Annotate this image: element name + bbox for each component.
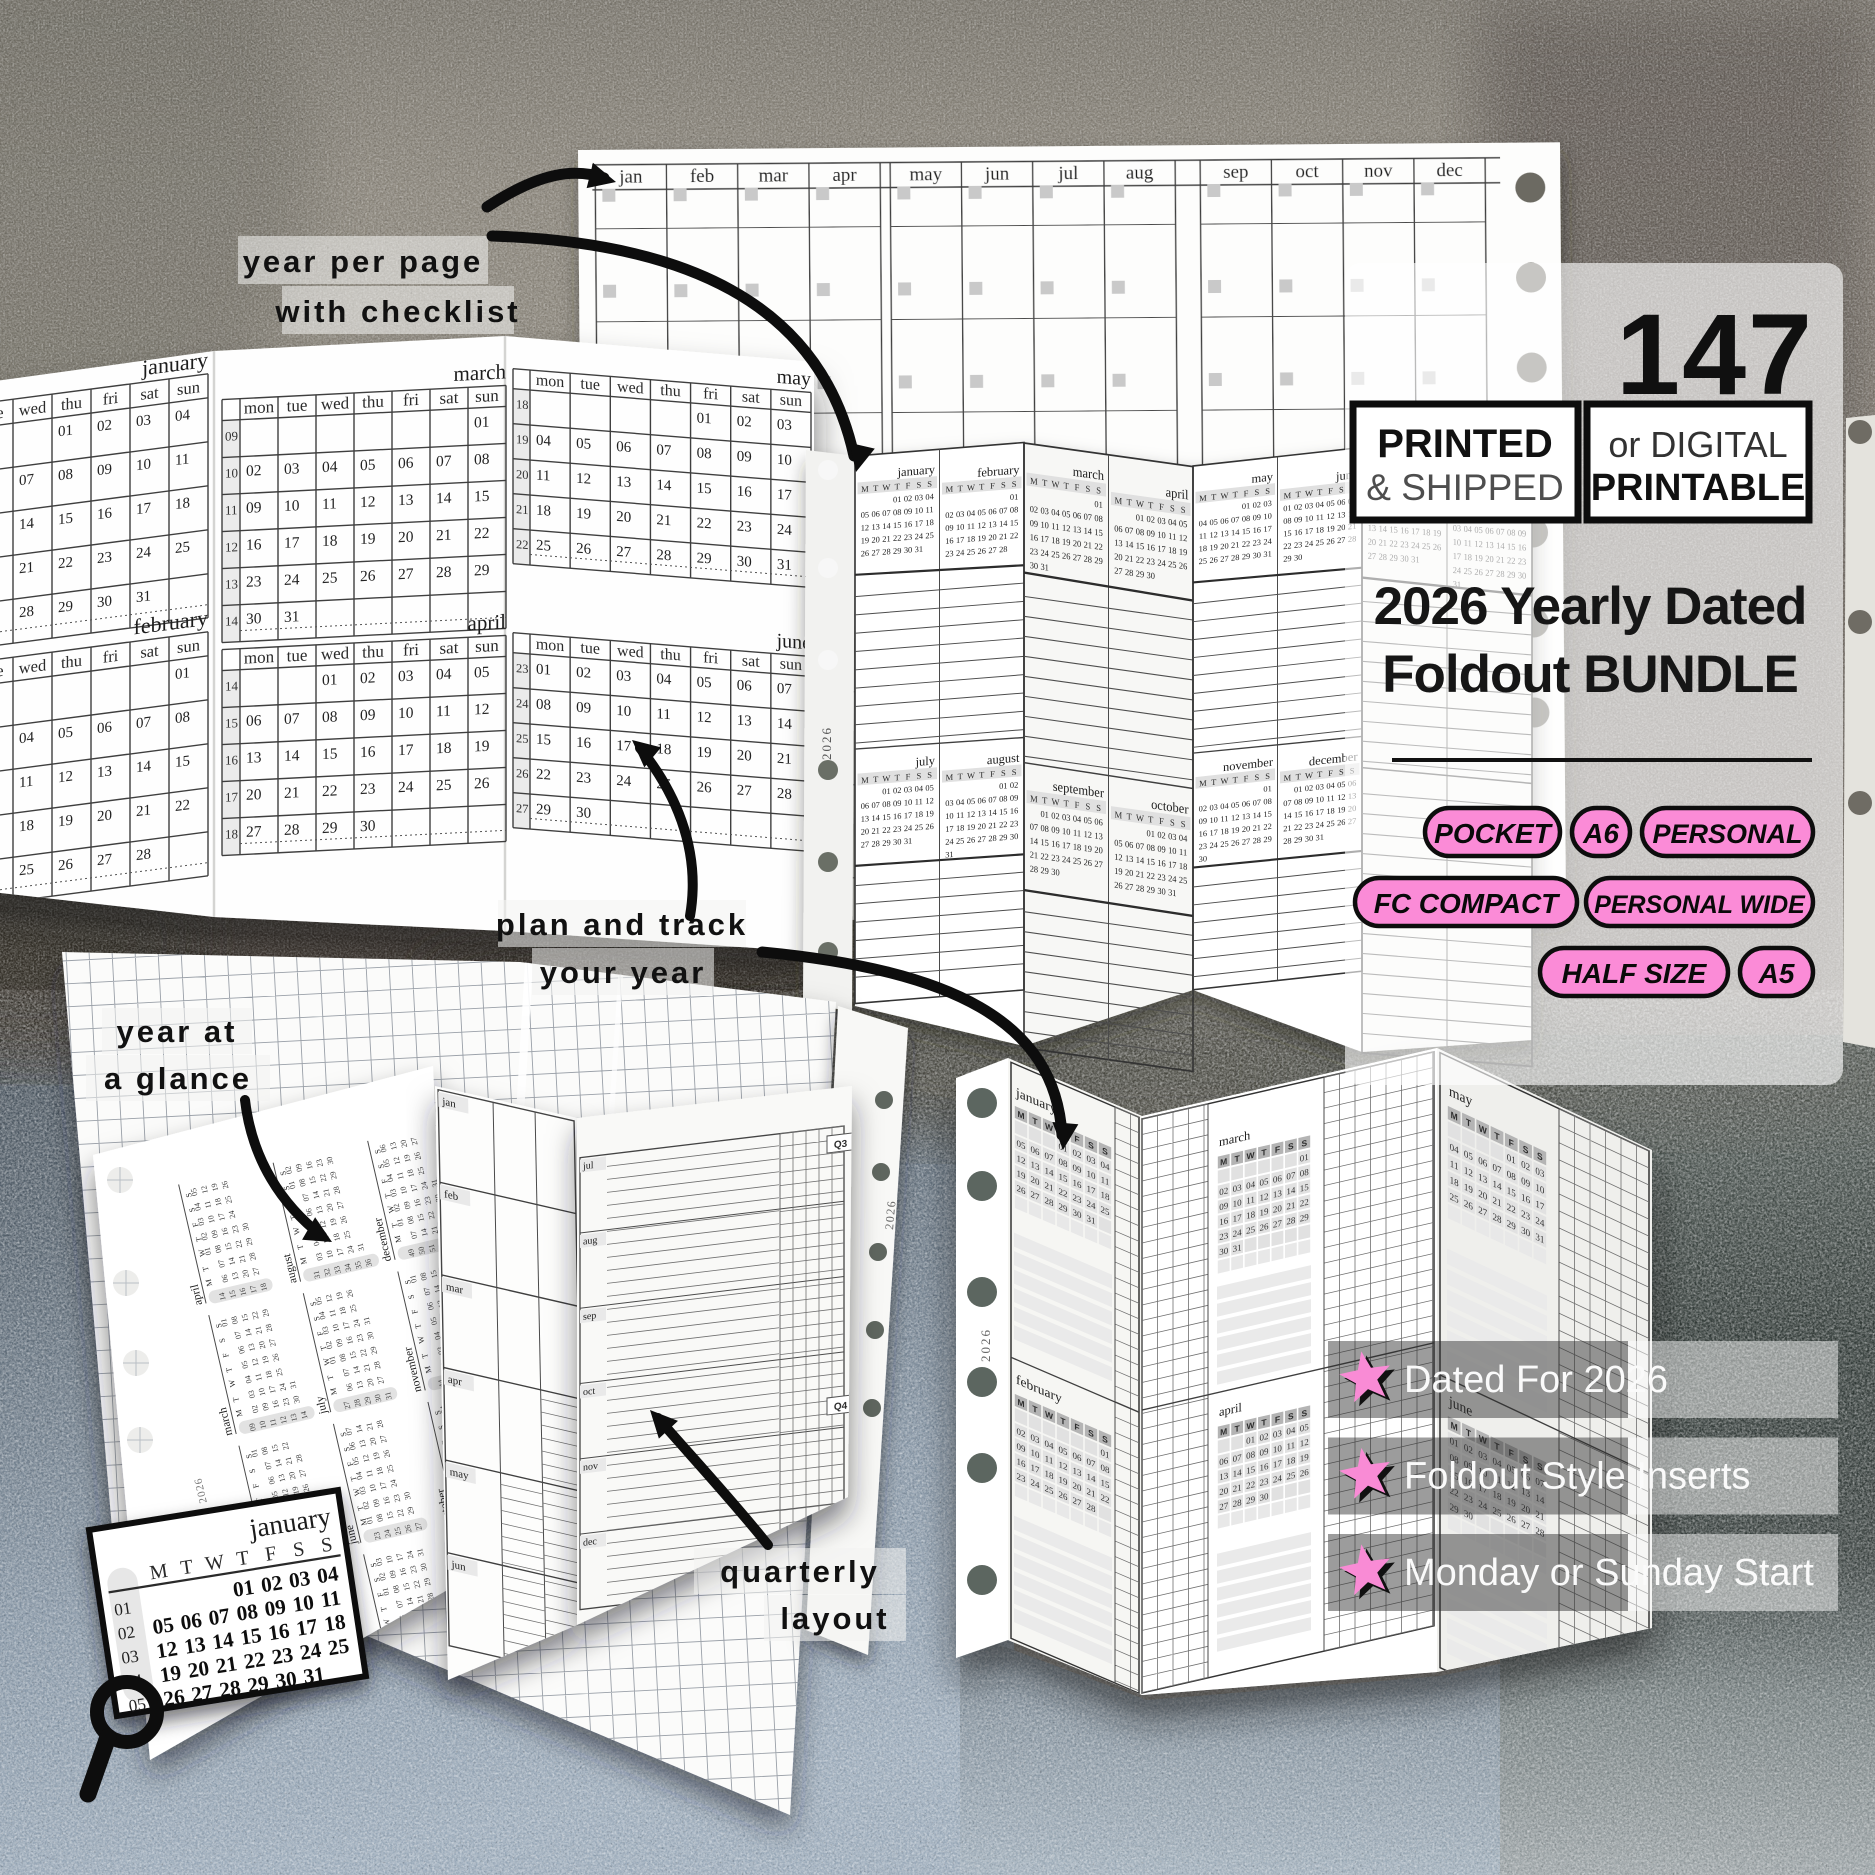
svg-text:tue: tue	[580, 375, 600, 394]
svg-text:sun: sun	[780, 655, 802, 674]
svg-text:S: S	[1170, 817, 1175, 828]
svg-text:aug: aug	[583, 1235, 597, 1248]
svg-text:28: 28	[218, 1675, 243, 1702]
svg-text:sat: sat	[140, 641, 159, 662]
svg-text:13: 13	[1242, 812, 1250, 822]
svg-text:30: 30	[246, 610, 262, 628]
svg-text:20: 20	[616, 509, 631, 526]
svg-text:20: 20	[737, 748, 752, 765]
svg-text:M: M	[1220, 1156, 1227, 1167]
svg-text:30: 30	[1157, 885, 1166, 897]
svg-text:30: 30	[274, 1666, 299, 1693]
svg-text:13: 13	[871, 522, 879, 532]
svg-text:24: 24	[284, 571, 300, 589]
svg-text:09: 09	[1157, 843, 1166, 855]
svg-text:with checklist: with checklist	[274, 294, 520, 329]
svg-text:02: 02	[97, 417, 112, 435]
svg-text:dec: dec	[1436, 160, 1463, 181]
svg-text:19: 19	[1231, 826, 1239, 836]
svg-text:& SHIPPED: & SHIPPED	[1366, 467, 1563, 508]
svg-text:T: T	[1235, 1153, 1241, 1164]
svg-text:20: 20	[1242, 824, 1250, 834]
svg-text:10: 10	[398, 705, 414, 723]
svg-text:sun: sun	[475, 636, 499, 656]
svg-text:03: 03	[915, 493, 923, 503]
svg-text:T: T	[979, 481, 985, 491]
svg-text:08: 08	[58, 466, 73, 484]
svg-text:16: 16	[267, 1618, 292, 1645]
svg-text:28: 28	[656, 547, 671, 564]
svg-text:19: 19	[925, 809, 933, 819]
svg-text:2026: 2026	[819, 726, 834, 760]
svg-text:13: 13	[1114, 537, 1123, 549]
svg-text:11: 11	[1051, 521, 1059, 532]
svg-text:17: 17	[398, 742, 414, 760]
svg-text:08: 08	[1263, 797, 1271, 807]
svg-text:12: 12	[1337, 793, 1345, 803]
svg-text:2026: 2026	[882, 1199, 899, 1230]
svg-text:02: 02	[360, 669, 375, 687]
svg-text:11: 11	[1199, 531, 1207, 541]
svg-text:22: 22	[175, 797, 190, 815]
svg-text:23: 23	[1147, 556, 1156, 568]
svg-text:19: 19	[158, 1660, 183, 1687]
svg-text:01: 01	[999, 781, 1007, 791]
svg-text:09: 09	[576, 700, 591, 717]
svg-text:01: 01	[1010, 492, 1018, 502]
svg-text:02: 02	[945, 510, 953, 520]
svg-text:09: 09	[1051, 824, 1060, 836]
svg-text:17: 17	[956, 535, 964, 545]
svg-text:Foldout BUNDLE: Foldout BUNDLE	[1382, 645, 1798, 704]
svg-text:T: T	[958, 483, 964, 493]
svg-text:24: 24	[1157, 557, 1166, 569]
svg-text:27: 27	[1114, 565, 1123, 577]
svg-text:03: 03	[904, 785, 912, 795]
svg-text:01: 01	[1136, 512, 1144, 524]
svg-text:S: S	[1301, 1408, 1307, 1419]
svg-text:27: 27	[398, 566, 414, 584]
svg-text:21: 21	[136, 802, 151, 820]
svg-text:wed: wed	[617, 642, 644, 661]
svg-text:tue: tue	[287, 645, 308, 665]
svg-text:10: 10	[291, 1590, 316, 1617]
svg-text:15: 15	[239, 1623, 264, 1650]
svg-text:nov: nov	[583, 1461, 599, 1474]
svg-text:20: 20	[246, 786, 262, 804]
svg-text:24: 24	[136, 544, 151, 562]
svg-text:03: 03	[777, 417, 792, 434]
svg-text:10: 10	[136, 456, 151, 474]
svg-text:17: 17	[915, 519, 923, 529]
svg-text:11: 11	[175, 451, 189, 469]
svg-text:17: 17	[904, 811, 912, 821]
svg-text:06: 06	[398, 455, 414, 473]
svg-text:16: 16	[945, 536, 953, 546]
svg-text:2026: 2026	[978, 1328, 993, 1362]
svg-text:Dated For 2026: Dated For 2026	[1404, 1359, 1668, 1401]
svg-text:29: 29	[882, 838, 890, 848]
svg-text:05: 05	[474, 664, 490, 682]
svg-text:03: 03	[1062, 812, 1071, 824]
svg-text:30: 30	[1051, 866, 1060, 878]
svg-text:T: T	[873, 483, 879, 493]
svg-text:31: 31	[302, 1662, 327, 1689]
svg-text:30: 30	[576, 805, 591, 822]
svg-text:03: 03	[956, 510, 964, 520]
svg-text:07: 07	[284, 710, 300, 728]
svg-text:20: 20	[988, 533, 996, 543]
svg-text:27: 27	[978, 835, 986, 845]
svg-text:S: S	[1254, 488, 1259, 497]
svg-text:18: 18	[1073, 841, 1082, 853]
svg-text:28: 28	[284, 821, 300, 839]
svg-text:27: 27	[1125, 881, 1134, 893]
svg-text:12: 12	[1179, 532, 1187, 544]
svg-text:F: F	[1328, 486, 1333, 495]
svg-text:11: 11	[1326, 794, 1334, 804]
svg-text:15: 15	[1094, 527, 1103, 539]
svg-text:23: 23	[360, 780, 376, 798]
svg-text:19: 19	[576, 506, 591, 523]
svg-text:sep: sep	[583, 1310, 596, 1323]
svg-text:24: 24	[398, 779, 414, 797]
svg-text:13: 13	[183, 1632, 208, 1659]
svg-text:02: 02	[1305, 783, 1313, 793]
svg-text:10: 10	[1305, 514, 1313, 524]
svg-text:30: 30	[97, 593, 112, 611]
svg-text:T: T	[1148, 814, 1154, 825]
svg-text:W: W	[1136, 498, 1145, 510]
svg-text:sat: sat	[742, 652, 760, 670]
svg-text:14: 14	[1231, 528, 1240, 538]
svg-text:21: 21	[516, 502, 528, 517]
svg-text:06: 06	[1125, 839, 1134, 851]
svg-text:M: M	[1115, 809, 1123, 820]
svg-text:27: 27	[861, 840, 869, 850]
svg-text:sep: sep	[1223, 162, 1248, 183]
svg-text:16: 16	[1305, 809, 1313, 819]
svg-text:14: 14	[1136, 854, 1145, 866]
svg-text:18: 18	[1316, 525, 1324, 535]
svg-text:12: 12	[58, 768, 73, 786]
svg-text:11: 11	[1246, 1194, 1255, 1206]
svg-text:F: F	[1075, 799, 1080, 810]
svg-text:T: T	[873, 774, 879, 784]
svg-text:28: 28	[1136, 882, 1145, 894]
svg-text:M: M	[946, 772, 954, 783]
svg-text:09: 09	[1253, 513, 1261, 523]
svg-text:09: 09	[1010, 793, 1018, 803]
svg-text:04: 04	[19, 729, 34, 747]
svg-text:march: march	[454, 359, 507, 386]
svg-text:07: 07	[1253, 798, 1261, 808]
svg-text:14: 14	[1030, 835, 1039, 847]
svg-text:03: 03	[1040, 505, 1049, 517]
svg-text:03: 03	[398, 668, 414, 686]
svg-text:08: 08	[1294, 797, 1302, 807]
svg-text:11: 11	[656, 706, 670, 723]
svg-text:30: 30	[904, 545, 912, 555]
svg-text:26: 26	[925, 822, 933, 832]
svg-text:W: W	[1305, 771, 1313, 781]
svg-text:15: 15	[58, 510, 73, 528]
svg-text:W: W	[1220, 491, 1228, 501]
svg-text:05: 05	[967, 797, 975, 807]
svg-text:T: T	[958, 771, 964, 781]
svg-text:M: M	[1030, 793, 1038, 804]
svg-text:17: 17	[945, 824, 953, 834]
svg-text:sun: sun	[780, 391, 802, 410]
svg-text:18: 18	[536, 502, 551, 519]
svg-text:12: 12	[925, 796, 933, 806]
svg-text:16: 16	[97, 505, 112, 523]
svg-text:25: 25	[322, 569, 338, 587]
svg-text:jun: jun	[984, 164, 1010, 185]
svg-text:11: 11	[915, 797, 923, 807]
svg-text:15: 15	[1010, 518, 1018, 528]
svg-text:29: 29	[1294, 835, 1302, 845]
svg-text:07: 07	[999, 506, 1007, 516]
svg-text:T: T	[1233, 490, 1238, 499]
svg-text:31: 31	[777, 557, 792, 574]
svg-text:T: T	[1127, 497, 1133, 508]
svg-text:11: 11	[1220, 814, 1228, 824]
svg-text:22: 22	[1040, 851, 1048, 863]
svg-text:21: 21	[1283, 824, 1291, 834]
svg-text:18: 18	[956, 823, 964, 833]
svg-text:oct: oct	[583, 1386, 595, 1398]
svg-text:28: 28	[1125, 567, 1134, 579]
svg-text:F: F	[990, 480, 995, 490]
svg-text:sun: sun	[177, 635, 201, 657]
svg-text:27: 27	[97, 851, 112, 869]
svg-text:06: 06	[1073, 510, 1082, 522]
svg-text:29: 29	[893, 546, 901, 556]
svg-text:T: T	[979, 769, 985, 779]
svg-text:18: 18	[1199, 544, 1207, 554]
svg-text:S: S	[1265, 772, 1270, 781]
svg-text:26: 26	[58, 856, 73, 874]
svg-text:01: 01	[882, 787, 890, 797]
svg-text:02: 02	[1157, 829, 1165, 841]
svg-text:W: W	[1247, 1420, 1256, 1432]
svg-text:24: 24	[1209, 840, 1218, 850]
svg-text:17: 17	[225, 789, 238, 805]
svg-text:19: 19	[967, 823, 975, 833]
svg-text:11: 11	[225, 502, 238, 518]
svg-text:17: 17	[616, 738, 631, 755]
svg-text:18: 18	[175, 495, 190, 513]
svg-text:07: 07	[1283, 798, 1291, 808]
svg-text:T: T	[1233, 775, 1238, 784]
svg-text:22: 22	[882, 825, 890, 835]
svg-text:W: W	[882, 482, 890, 493]
svg-text:06: 06	[1220, 516, 1228, 526]
svg-text:12: 12	[1326, 511, 1334, 521]
svg-text:S: S	[1012, 767, 1017, 777]
svg-text:19: 19	[1326, 524, 1334, 534]
svg-text:thu: thu	[660, 646, 680, 665]
svg-text:04: 04	[1179, 832, 1188, 844]
svg-text:27: 27	[1073, 552, 1082, 564]
svg-text:F: F	[1275, 1414, 1280, 1425]
svg-text:09: 09	[246, 499, 262, 517]
svg-text:F: F	[1244, 774, 1249, 783]
svg-text:16: 16	[225, 752, 238, 768]
svg-text:28: 28	[988, 834, 996, 844]
svg-text:13: 13	[97, 763, 112, 781]
svg-text:03: 03	[945, 799, 953, 809]
svg-text:20: 20	[1337, 523, 1345, 533]
svg-text:fri: fri	[703, 385, 719, 403]
svg-text:18: 18	[19, 818, 34, 836]
svg-text:28: 28	[1283, 836, 1291, 846]
svg-text:02: 02	[1147, 513, 1155, 525]
svg-text:07: 07	[656, 442, 671, 459]
svg-text:14: 14	[777, 716, 792, 733]
svg-text:08: 08	[175, 709, 190, 727]
svg-text:12: 12	[225, 539, 238, 555]
svg-text:14: 14	[136, 758, 151, 776]
svg-text:13: 13	[861, 814, 869, 824]
svg-text:07: 07	[1030, 821, 1039, 833]
svg-text:13: 13	[246, 749, 262, 767]
svg-text:jul: jul	[582, 1160, 594, 1172]
svg-text:06: 06	[988, 507, 996, 517]
svg-text:15: 15	[1263, 809, 1271, 819]
svg-text:10: 10	[945, 811, 953, 821]
svg-text:april: april	[1166, 484, 1189, 503]
svg-text:03: 03	[1263, 499, 1271, 509]
svg-text:14: 14	[999, 519, 1008, 529]
svg-text:fri: fri	[103, 388, 119, 409]
svg-text:T: T	[1042, 477, 1048, 488]
svg-text:26: 26	[978, 546, 986, 556]
svg-text:12: 12	[967, 810, 975, 820]
svg-text:02: 02	[1199, 804, 1207, 814]
svg-text:15: 15	[536, 731, 551, 748]
svg-text:15: 15	[882, 812, 890, 822]
svg-text:23: 23	[270, 1642, 295, 1669]
svg-text:S: S	[1001, 480, 1006, 490]
svg-text:21: 21	[999, 532, 1007, 542]
svg-text:18: 18	[967, 534, 975, 544]
svg-text:07: 07	[882, 509, 890, 519]
svg-text:thu: thu	[660, 382, 680, 401]
svg-text:11: 11	[1168, 531, 1176, 542]
svg-text:12: 12	[697, 709, 712, 726]
svg-text:fri: fri	[403, 390, 419, 410]
svg-text:08: 08	[235, 1599, 260, 1626]
svg-text:01: 01	[1283, 504, 1291, 514]
svg-text:mon: mon	[536, 372, 564, 391]
svg-text:21: 21	[656, 512, 671, 529]
svg-text:S: S	[1096, 485, 1101, 496]
svg-text:23: 23	[945, 549, 953, 559]
svg-text:02: 02	[737, 414, 752, 431]
svg-text:S: S	[1339, 485, 1344, 494]
svg-text:W: W	[1051, 796, 1060, 808]
svg-text:25: 25	[536, 537, 551, 554]
svg-text:14: 14	[225, 678, 238, 694]
svg-text:27: 27	[516, 801, 528, 816]
svg-text:T: T	[1148, 500, 1154, 511]
svg-text:11: 11	[536, 467, 550, 484]
svg-text:02: 02	[1294, 502, 1302, 512]
svg-text:Q4: Q4	[834, 1401, 848, 1414]
svg-text:05: 05	[151, 1612, 176, 1639]
svg-text:04: 04	[915, 784, 924, 794]
svg-text:08: 08	[893, 508, 901, 518]
svg-text:09: 09	[1030, 518, 1039, 530]
svg-text:year at: year at	[117, 1014, 238, 1049]
svg-text:Q3: Q3	[834, 1139, 848, 1152]
svg-text:04: 04	[536, 432, 551, 449]
svg-text:21: 21	[1084, 539, 1092, 551]
svg-text:28: 28	[871, 839, 879, 849]
svg-text:15: 15	[474, 488, 490, 506]
svg-text:M: M	[946, 484, 954, 495]
svg-text:19: 19	[474, 738, 490, 756]
svg-text:25: 25	[1179, 874, 1188, 886]
svg-text:20: 20	[861, 827, 869, 837]
svg-text:25: 25	[175, 539, 190, 557]
svg-text:23: 23	[737, 519, 752, 536]
svg-text:02: 02	[1051, 810, 1059, 822]
svg-text:30: 30	[360, 817, 376, 835]
svg-text:24: 24	[945, 837, 954, 847]
svg-text:24: 24	[1168, 873, 1177, 885]
svg-text:A5: A5	[1758, 958, 1795, 989]
svg-text:fri: fri	[103, 646, 119, 667]
svg-text:04: 04	[1220, 801, 1229, 811]
svg-text:07: 07	[207, 1603, 232, 1630]
svg-text:20: 20	[871, 535, 879, 545]
svg-text:15: 15	[1040, 837, 1049, 849]
svg-text:S: S	[1170, 503, 1175, 514]
svg-text:05: 05	[1084, 815, 1093, 827]
svg-text:S: S	[916, 479, 921, 489]
svg-text:29: 29	[1242, 552, 1250, 562]
svg-text:28: 28	[19, 604, 34, 622]
svg-text:10: 10	[1263, 512, 1271, 522]
svg-text:16: 16	[1199, 829, 1207, 839]
svg-text:23: 23	[1305, 821, 1313, 831]
svg-text:dec: dec	[583, 1536, 597, 1549]
svg-text:30: 30	[737, 554, 752, 571]
svg-text:03: 03	[287, 1566, 312, 1593]
svg-text:oct: oct	[1295, 161, 1319, 182]
svg-text:14: 14	[211, 1627, 236, 1654]
svg-text:01: 01	[1242, 501, 1250, 511]
svg-text:11: 11	[926, 505, 934, 515]
svg-text:20: 20	[1220, 542, 1228, 552]
svg-text:09: 09	[945, 523, 953, 533]
svg-text:26: 26	[1062, 550, 1071, 562]
svg-text:27: 27	[616, 544, 631, 561]
svg-text:15: 15	[1294, 810, 1302, 820]
svg-text:13: 13	[737, 713, 752, 730]
svg-text:06: 06	[871, 509, 879, 519]
svg-text:29: 29	[1040, 865, 1049, 877]
svg-text:27: 27	[1337, 535, 1345, 545]
svg-text:26: 26	[1209, 555, 1217, 565]
svg-text:08: 08	[999, 794, 1007, 804]
svg-text:20: 20	[398, 529, 414, 547]
svg-text:02: 02	[1010, 781, 1018, 791]
svg-text:31: 31	[136, 588, 151, 606]
